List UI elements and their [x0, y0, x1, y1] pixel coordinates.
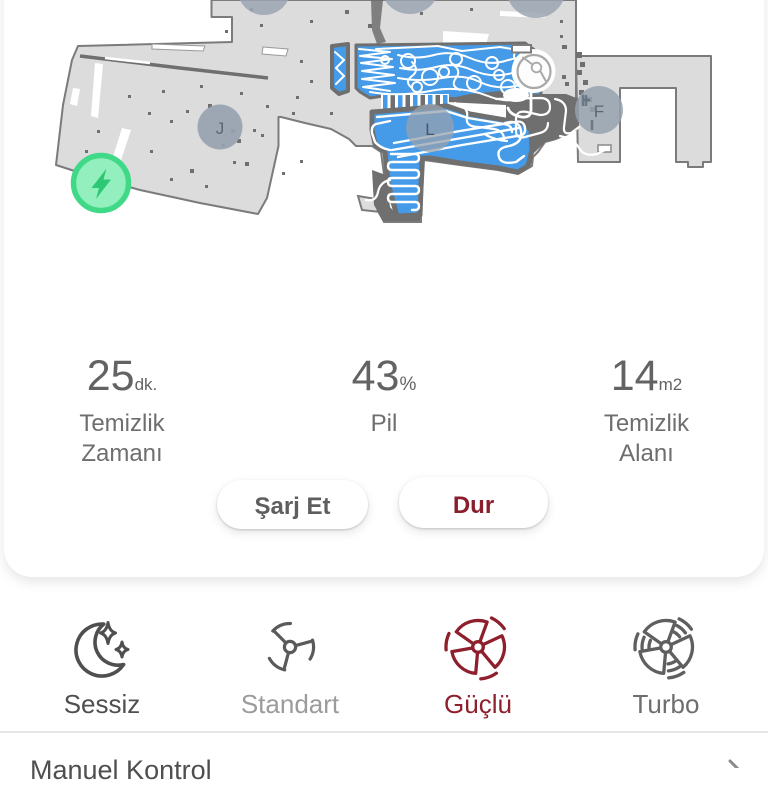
svg-text:F: F [594, 102, 604, 121]
svg-text:L: L [425, 120, 434, 139]
svg-text:J: J [216, 119, 225, 138]
